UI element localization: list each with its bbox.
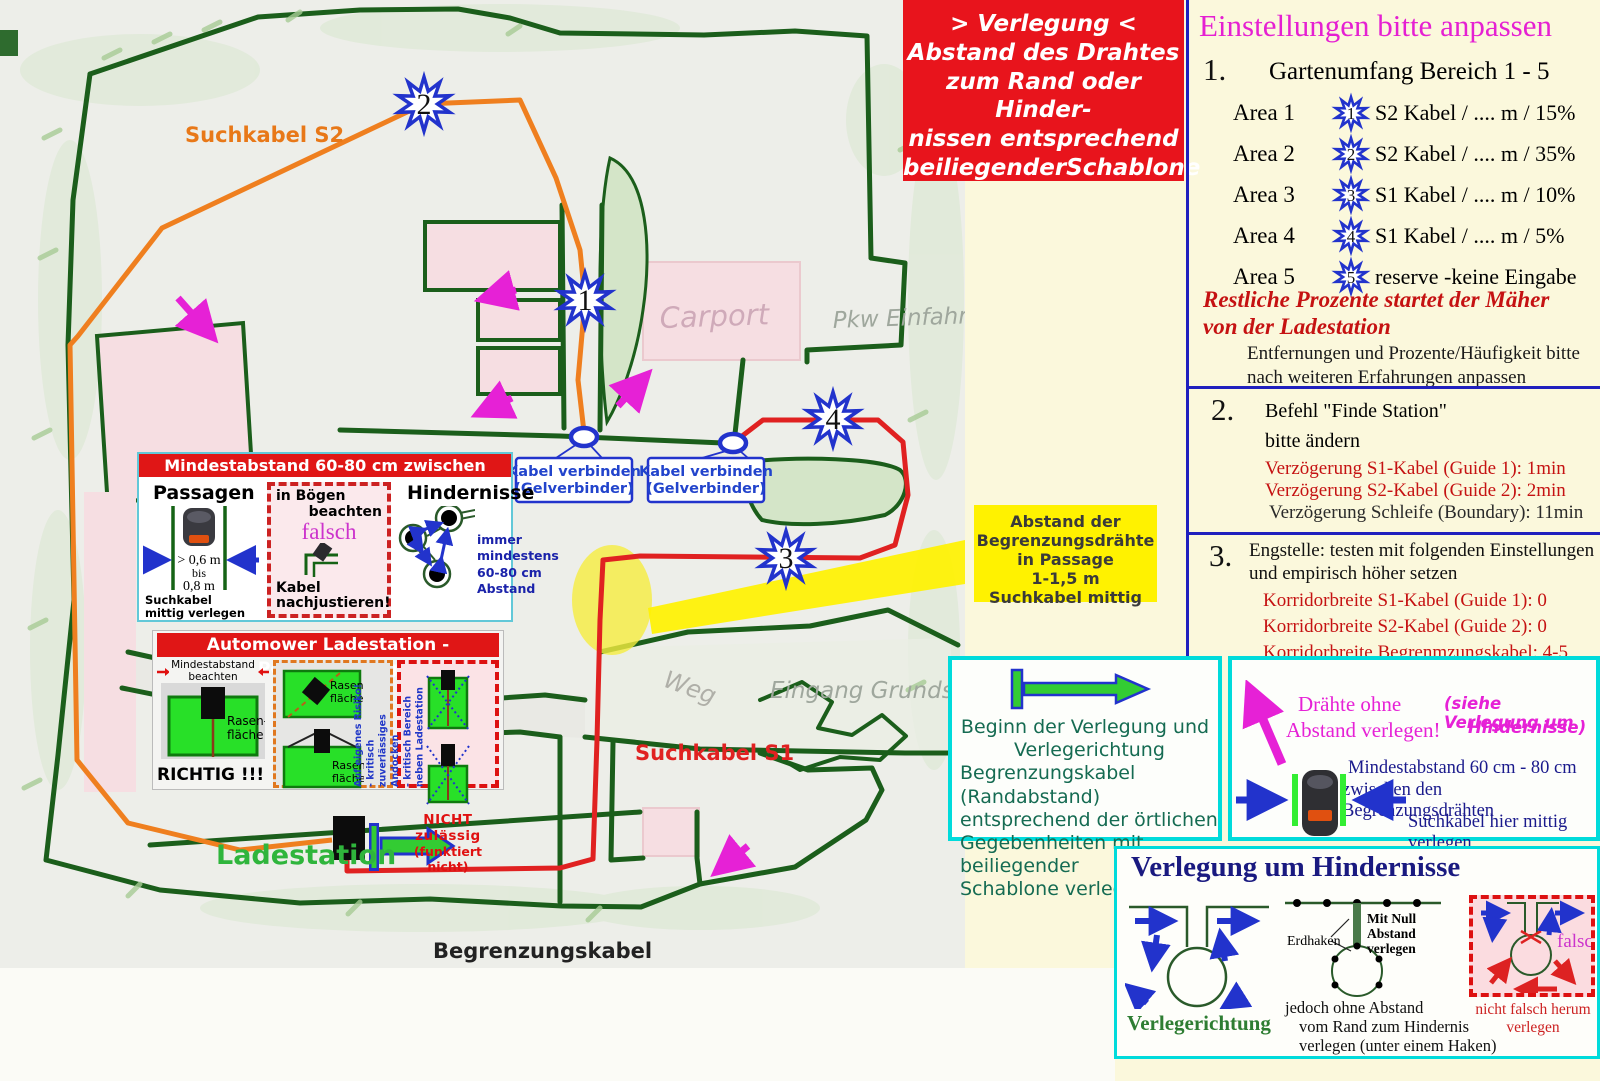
mindestabstand-panel: Mindestabstand 60-80 cm zwischen Begrenz… bbox=[137, 452, 513, 622]
hindernisse-verlegung-box: Verlegung um Hindernisse Verlegerichtung… bbox=[1114, 846, 1600, 1059]
label-suchkabel-s1: Suchkabel S1 bbox=[635, 741, 794, 765]
falsch-label: falsch bbox=[1557, 931, 1591, 952]
svg-text:1: 1 bbox=[1347, 104, 1356, 123]
passagen-dim3: 0,8 m bbox=[183, 579, 215, 592]
area-label: Area 2 bbox=[1233, 141, 1329, 167]
settings-panel: Einstellungen bitte anpassen 1. Gartenum… bbox=[1186, 0, 1600, 658]
falsch-diagram-box: falsch bbox=[1469, 895, 1595, 997]
section-divider bbox=[1189, 386, 1600, 389]
passagen-footnote: Suchkabelmittig verlegen bbox=[145, 594, 245, 620]
verzoegerung-schleife: Verzögerung Schleife (Boundary): 11min bbox=[1269, 502, 1583, 524]
svg-text:5: 5 bbox=[1347, 268, 1356, 287]
station-correct-graphic: Rasen- fläche bbox=[161, 683, 265, 759]
draehte-line1: Drähte ohne bbox=[1298, 692, 1401, 717]
area-row: Area 4 4 S1 Kabel / .... m / 5% bbox=[1233, 215, 1600, 256]
mindestabstand-header: Mindestabstand 60-80 cm zwischen Begrenz… bbox=[139, 454, 511, 477]
boegen-graphic bbox=[276, 543, 386, 577]
svg-text:1: 1 bbox=[578, 284, 593, 317]
station-diagonal-graphic: Rasen- fläche bbox=[280, 665, 364, 723]
mower-between-wires-graphic bbox=[1236, 766, 1408, 838]
start-direction-arrow bbox=[1004, 668, 1174, 712]
station-wrong-graphic-2 bbox=[425, 742, 471, 808]
boegen-footnote: Kabelnachjustieren! bbox=[276, 581, 382, 612]
area-label: Area 1 bbox=[1233, 100, 1329, 126]
notice-line: > Verlegung < bbox=[903, 10, 1184, 39]
area-row: Area 1 1 S2 Kabel / .... m / 15% bbox=[1233, 92, 1600, 133]
label-carport-handwriting: Carport bbox=[659, 297, 771, 335]
notice-line: nissen entsprechend bbox=[903, 125, 1184, 154]
section1-title: Gartenumfang Bereich 1 - 5 bbox=[1269, 58, 1549, 86]
area-value: S1 Kabel / .... m / 10% bbox=[1375, 182, 1575, 208]
area-marker-star: 2 bbox=[1329, 131, 1373, 177]
korridor-s1: Korridorbreite S1-Kabel (Guide 1): 0 bbox=[1263, 590, 1547, 612]
svg-text:3: 3 bbox=[779, 542, 794, 575]
station-correct-column: Mindestabstandbeachten Rasen- fläche RIC… bbox=[157, 660, 269, 788]
korridor-s2: Korridorbreite S2-Kabel (Guide 2): 0 bbox=[1263, 616, 1547, 638]
section2-subtitle: bitte ändern bbox=[1265, 430, 1360, 453]
falsch-label: falsch bbox=[276, 520, 382, 543]
svg-text:4: 4 bbox=[826, 403, 841, 436]
verzoegerung-s1: Verzögerung S1-Kabel (Guide 1): 1min bbox=[1265, 458, 1566, 480]
note-entfernungen: Entfernungen und Prozente/Häufigkeit bit… bbox=[1247, 342, 1580, 390]
boegen-box: in Bögen beachten falsch Kabelnachjustie… bbox=[267, 482, 391, 618]
ladestation-header: Automower Ladestation - Positionierung bbox=[157, 633, 499, 657]
erdhaken-caption: jedoch ohne Abstand vom Rand zum Hindern… bbox=[1285, 999, 1496, 1056]
red-arrow-icon bbox=[257, 666, 269, 678]
verlegung-notice: > Verlegung < Abstand des Drahtes zum Ra… bbox=[903, 0, 1184, 181]
notice-line: beiliegenderSchablone bbox=[903, 154, 1184, 183]
rasenflaeche-label: Rasen- bbox=[227, 714, 265, 728]
hindernisse-note: immermindestens 60-80 cmAbstand bbox=[477, 532, 559, 597]
rasenflaeche-label: fläche bbox=[227, 728, 264, 742]
boegen-line1: in Bögen bbox=[276, 488, 382, 504]
verlegerichtung-label: Verlegerichtung bbox=[1127, 1011, 1271, 1036]
falsch-caption: nicht falsch herumverlegen bbox=[1475, 1001, 1591, 1037]
svg-text:4: 4 bbox=[1347, 227, 1356, 246]
nicht-zulaessig-label: NICHT zulässig bbox=[401, 812, 495, 844]
hedge-block bbox=[0, 30, 18, 56]
label-ladestation: Ladestation bbox=[216, 840, 396, 871]
boegen-line2: beachten bbox=[276, 504, 382, 520]
siehe-note-2: Hindernisse) bbox=[1468, 718, 1586, 737]
erdhaken-diagram: Erdhaken Mit Null Abstand verlegen bbox=[1285, 893, 1445, 997]
area-label: Area 3 bbox=[1233, 182, 1329, 208]
area-list: Area 1 1 S2 Kabel / .... m / 15% Area 2 … bbox=[1233, 92, 1600, 297]
section3-number: 3. bbox=[1209, 538, 1232, 574]
hindernisse-graphic bbox=[397, 506, 475, 602]
notice-line: zum Rand oder Hinder- bbox=[903, 68, 1184, 126]
station-wedge-graphic: Rasen- fläche bbox=[280, 727, 364, 789]
null-abstand-label: verlegen bbox=[1367, 941, 1416, 956]
hindernisse-title: Hindernisse bbox=[407, 482, 534, 504]
area-marker-star: 1 bbox=[1329, 90, 1373, 136]
null-abstand-label: Mit Null bbox=[1367, 911, 1416, 926]
verlegerichtung-box: Beginn der Verlegung und Verlegerichtung… bbox=[948, 656, 1222, 841]
falsch-diagram: falsch bbox=[1473, 899, 1591, 993]
station-wrong-graphic-1 bbox=[425, 668, 471, 734]
label-begrenzungskabel: Begrenzungskabel bbox=[433, 939, 652, 963]
area-marker-star: 4 bbox=[1329, 213, 1373, 259]
label-eingang-handwriting: Eingang Grundstück bbox=[770, 678, 965, 704]
notice-line: Abstand des Drahtes bbox=[903, 39, 1184, 68]
svg-text:2: 2 bbox=[1347, 145, 1356, 164]
erdhaken-label: Erdhaken bbox=[1287, 934, 1341, 949]
connector2-label-line1: Kabel verbinden bbox=[639, 464, 773, 480]
passagen-graphic: > 0,6 m bis 0,8 m bbox=[143, 504, 261, 592]
label-suchkabel-s2: Suchkabel S2 bbox=[185, 123, 344, 147]
section3-title: Engstelle: testen mit folgenden Einstell… bbox=[1249, 540, 1594, 586]
label-pkw-einfahrt-handwriting: Pkw Einfahrt bbox=[832, 303, 965, 334]
section2-title: Befehl "Finde Station" bbox=[1265, 400, 1447, 423]
passage-distance-note: Abstand derBegrenzungsdrähte in Passage1… bbox=[974, 505, 1157, 602]
settings-title: Einstellungen bitte anpassen bbox=[1199, 8, 1552, 44]
area-label: Area 4 bbox=[1233, 223, 1329, 249]
area-value: S2 Kabel / .... m / 15% bbox=[1375, 100, 1575, 126]
area-row: Area 3 3 S1 Kabel / .... m / 10% bbox=[1233, 174, 1600, 215]
richtig-label: RICHTIG !!! bbox=[157, 765, 269, 785]
draehte-line2: Abstand verlegen! bbox=[1286, 718, 1441, 743]
section2-number: 2. bbox=[1211, 392, 1234, 428]
nicht-zulaessig-sub: (funktiert nicht) bbox=[401, 844, 495, 874]
passagen-dim2: bis bbox=[192, 566, 206, 580]
red-arrow-icon bbox=[157, 666, 169, 678]
passagen-title: Passagen bbox=[153, 482, 255, 504]
bottom-strip bbox=[0, 968, 1115, 1081]
risiko-note: Auf eigenes Risiko! - kritisch zuverläss… bbox=[353, 665, 389, 787]
svg-text:2: 2 bbox=[417, 88, 432, 121]
verlegerichtung-diagram bbox=[1125, 893, 1277, 1009]
null-abstand-label: Abstand bbox=[1367, 926, 1416, 941]
area-marker-star: 3 bbox=[1329, 172, 1373, 218]
connector2-label-line2: (Gelverbinder) bbox=[646, 481, 765, 497]
min-abstand-note: Mindestabstandbeachten bbox=[171, 660, 255, 683]
area-value: S2 Kabel / .... m / 35% bbox=[1375, 141, 1575, 167]
ladestation-panel: Automower Ladestation - Positionierung M… bbox=[152, 630, 504, 790]
section1-number: 1. bbox=[1203, 52, 1226, 88]
area-value: S1 Kabel / .... m / 5% bbox=[1375, 223, 1564, 249]
station-risky-column: Rasen- fläche Rasen- fläche Auf eigenes … bbox=[273, 660, 393, 788]
verzoegerung-s2: Verzögerung S2-Kabel (Guide 2): 2min bbox=[1265, 480, 1566, 502]
draehte-box: Drähte ohne Abstand verlegen! (siehe Ver… bbox=[1228, 656, 1600, 841]
hindernisse-box-title: Verlegung um Hindernisse bbox=[1131, 851, 1460, 884]
connector1-label-line1: Kabel verbinden bbox=[507, 464, 641, 480]
area-row: Area 2 2 S2 Kabel / .... m / 35% bbox=[1233, 133, 1600, 174]
section-divider bbox=[1189, 532, 1600, 535]
svg-text:3: 3 bbox=[1347, 186, 1356, 205]
note-restliche: Restliche Prozente startet der Mähervon … bbox=[1203, 286, 1549, 340]
